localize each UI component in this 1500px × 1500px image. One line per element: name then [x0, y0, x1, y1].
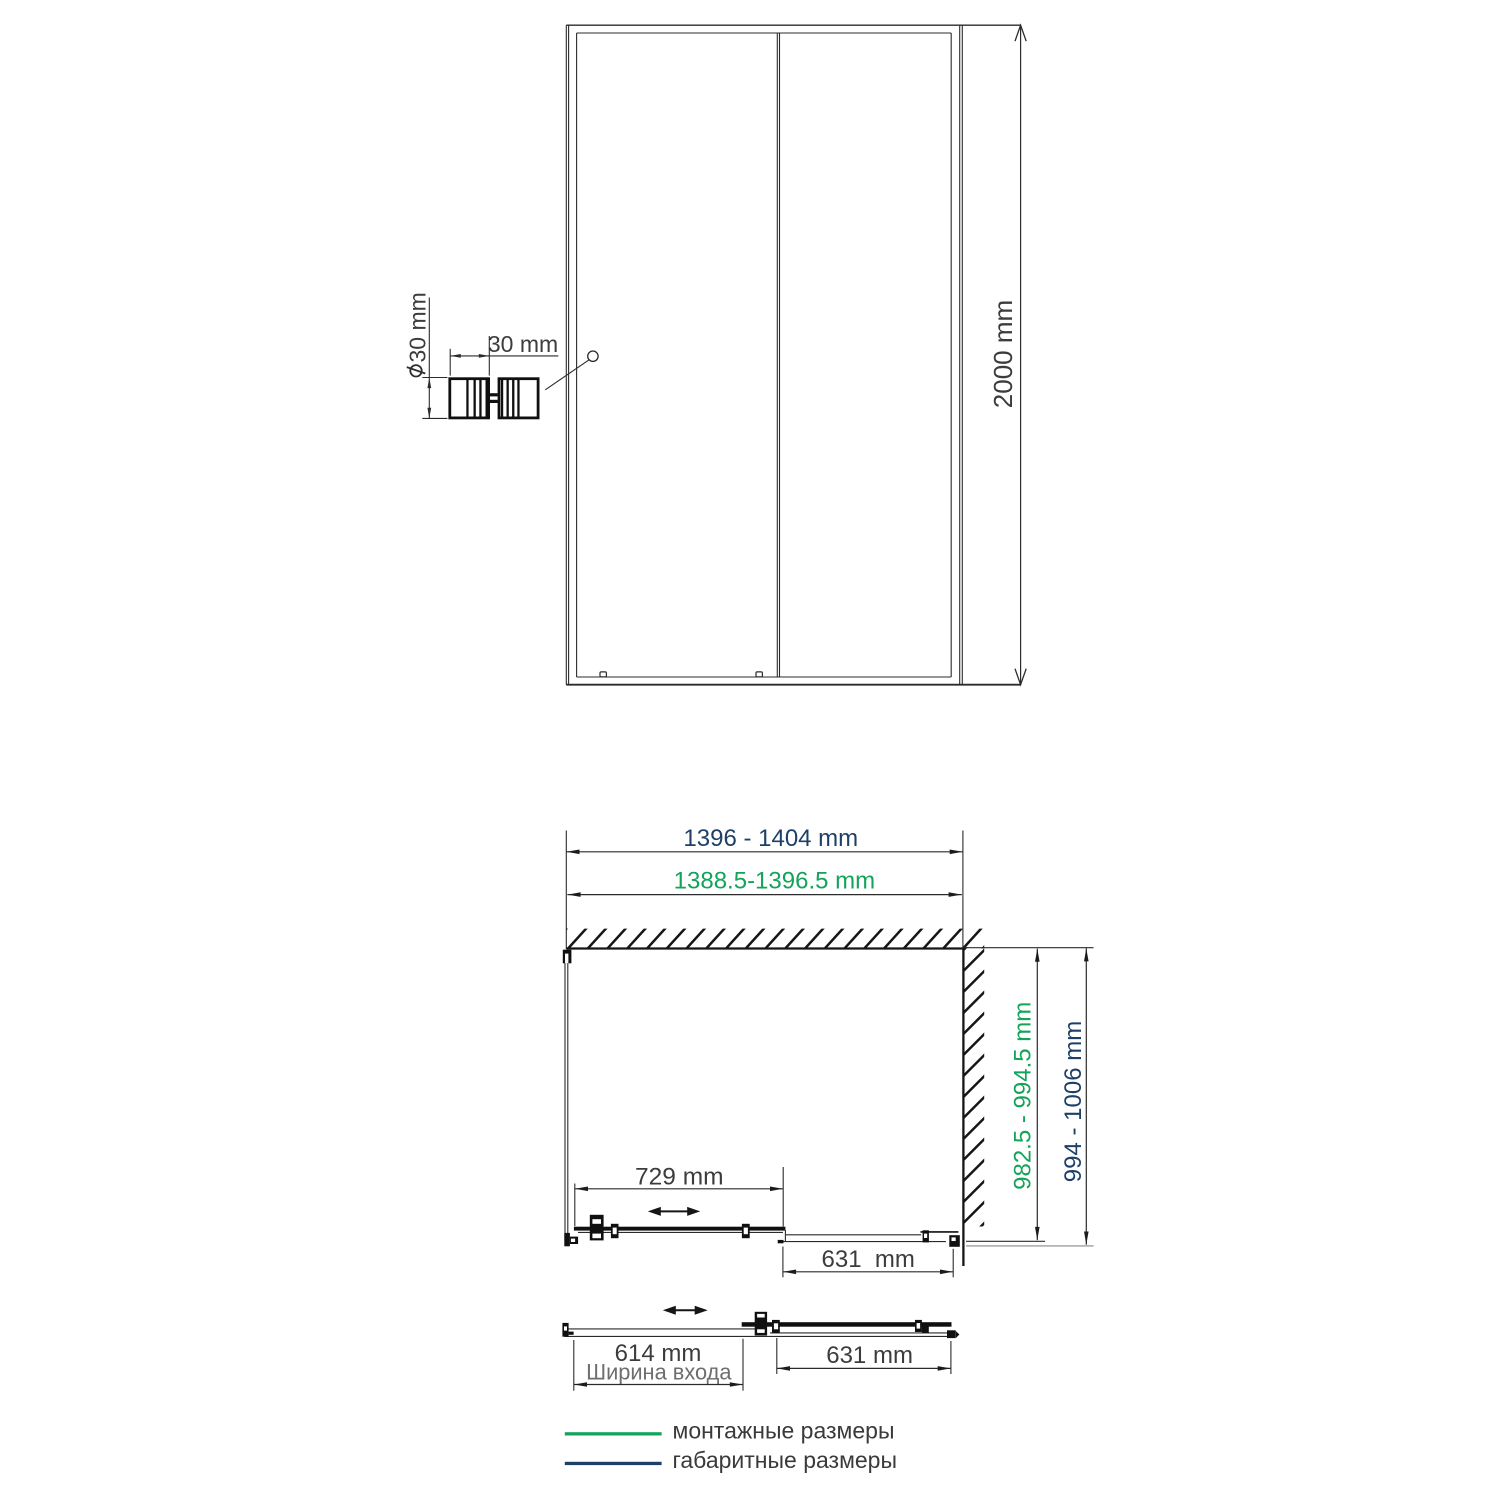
svg-text:631 mm: 631 mm — [822, 1246, 915, 1273]
svg-text:монтажные размеры: монтажные размеры — [673, 1418, 895, 1444]
svg-text:982.5 - 994.5 mm: 982.5 - 994.5 mm — [1010, 1002, 1037, 1190]
svg-text:30 mm: 30 mm — [405, 292, 431, 362]
svg-text:30 mm: 30 mm — [488, 331, 558, 357]
svg-text:631 mm: 631 mm — [826, 1342, 913, 1369]
svg-text:994 - 1006 mm: 994 - 1006 mm — [1060, 1021, 1087, 1182]
svg-text:2000 mm: 2000 mm — [988, 300, 1018, 408]
svg-text:729 mm: 729 mm — [635, 1163, 724, 1190]
svg-text:1396 - 1404 mm: 1396 - 1404 mm — [683, 825, 858, 852]
svg-text:Ширина входа: Ширина входа — [586, 1359, 732, 1384]
svg-text:габаритные размеры: габаритные размеры — [673, 1447, 898, 1473]
svg-text:1388.5-1396.5 mm: 1388.5-1396.5 mm — [674, 868, 875, 895]
